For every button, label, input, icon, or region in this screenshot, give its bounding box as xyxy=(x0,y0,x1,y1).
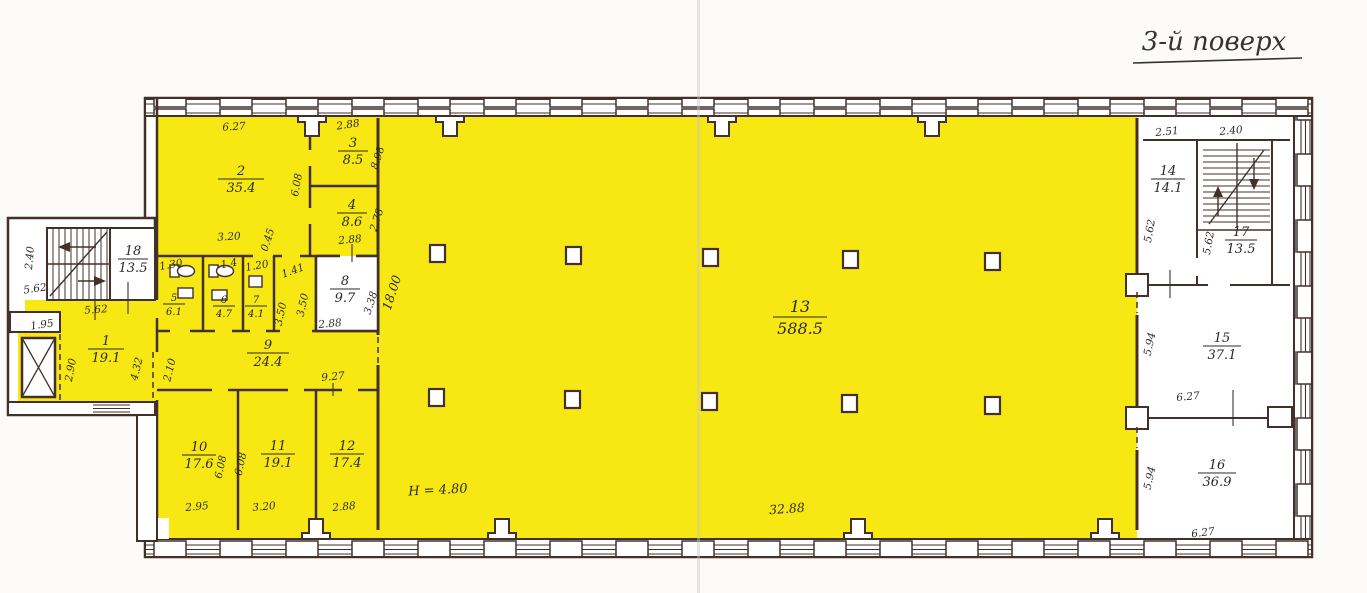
ceiling-height-note: H = 4.80 xyxy=(407,481,468,499)
room-18-area: 13.5 xyxy=(119,261,148,276)
room-4-area: 8.6 xyxy=(342,215,363,230)
room-8-number: 8 xyxy=(341,274,349,289)
scan-fold-seam xyxy=(697,0,700,593)
washbasin-icon xyxy=(178,288,193,298)
room-2-number: 2 xyxy=(236,164,245,179)
room-9-number: 9 xyxy=(264,338,272,353)
room-10-area: 17.6 xyxy=(185,457,214,472)
dim-label: 2.40 xyxy=(23,246,37,272)
scanned-floor-plan-page: 1 19.1 2 35.4 3 8.5 4 8.6 5 6.1 6 4.7 7 … xyxy=(0,0,1367,593)
room-17-number: 17 xyxy=(1233,225,1250,240)
window-band-top xyxy=(145,98,1312,116)
dim-label: 3.20 xyxy=(217,230,241,243)
room-4-number: 4 xyxy=(347,198,356,213)
dim-label: 2.51 xyxy=(1154,125,1179,139)
room-7-area: 4.1 xyxy=(247,309,264,320)
room-7-number: 7 xyxy=(253,295,260,306)
room-3-area: 8.5 xyxy=(343,153,364,168)
stairwell-left xyxy=(47,228,110,300)
room-3-number: 3 xyxy=(349,136,357,151)
dim-label: 32.88 xyxy=(769,500,806,517)
room-17-area: 13.5 xyxy=(1227,242,1256,257)
washbasin-icon xyxy=(249,276,262,287)
room-14-number: 14 xyxy=(1160,164,1177,179)
room-1-area: 19.1 xyxy=(92,351,121,366)
room-12-number: 12 xyxy=(339,439,356,454)
room-5-number: 5 xyxy=(171,293,177,304)
room-11-number: 11 xyxy=(270,439,287,454)
dim-label: 2.88 xyxy=(317,317,343,331)
dim-label: 5.62 xyxy=(84,303,108,317)
room-1-number: 1 xyxy=(102,334,110,349)
dim-label: 2.95 xyxy=(184,500,210,514)
room-16-area: 36.9 xyxy=(1203,475,1232,490)
room-8-area: 9.7 xyxy=(335,291,356,306)
highlighted-area xyxy=(18,116,1137,539)
dim-label: 6.27 xyxy=(1176,390,1201,404)
room-15-number: 15 xyxy=(1214,331,1231,346)
room-18-number: 18 xyxy=(125,244,142,259)
room-9-area: 24.4 xyxy=(253,355,283,370)
dim-label: 2.88 xyxy=(331,500,357,514)
room-2-area: 35.4 xyxy=(227,181,256,196)
room-6-number: 6 xyxy=(221,295,228,306)
room-13-area: 588.5 xyxy=(777,319,823,338)
room-10-number: 10 xyxy=(191,440,208,455)
elevator-shaft xyxy=(22,338,55,397)
window-band-bottom xyxy=(145,539,1312,557)
room-6-area: 4.7 xyxy=(215,309,233,320)
page-title: 3-й поверх xyxy=(1142,27,1287,57)
dim-label: 3.20 xyxy=(252,500,277,514)
room-13-number: 13 xyxy=(790,297,810,316)
floor-plan-drawing: 1 19.1 2 35.4 3 8.5 4 8.6 5 6.1 6 4.7 7 … xyxy=(0,0,1367,593)
room-16-number: 16 xyxy=(1209,458,1226,473)
room-12-area: 17.4 xyxy=(333,456,362,471)
room-11-area: 19.1 xyxy=(264,456,293,471)
room-5-area: 6.1 xyxy=(166,307,182,318)
dim-label: 6.27 xyxy=(222,120,246,133)
dim-label: 9.27 xyxy=(321,370,346,384)
dim-label: 2.88 xyxy=(337,233,363,247)
room-15-area: 37.1 xyxy=(1208,348,1237,363)
wall-notch xyxy=(157,518,169,539)
window-band-right xyxy=(1294,116,1312,539)
room-14-area: 14.1 xyxy=(1154,181,1183,196)
dim-label: 2.40 xyxy=(1218,124,1244,138)
